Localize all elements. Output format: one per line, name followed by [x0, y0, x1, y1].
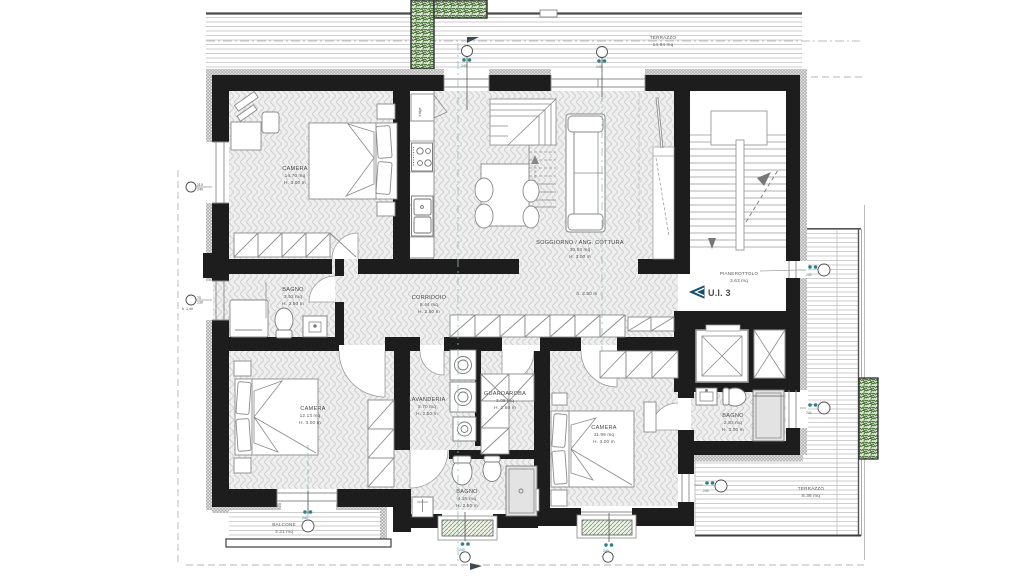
svg-text:BALCONE: BALCONE — [272, 522, 295, 527]
svg-text:BAGNO: BAGNO — [282, 287, 304, 293]
svg-text:H. 2.50 m: H. 2.50 m — [456, 503, 478, 508]
svg-text:240: 240 — [806, 411, 812, 415]
svg-text:PIANEROTTOLO: PIANEROTTOLO — [720, 271, 759, 276]
svg-text:3.63 mq: 3.63 mq — [730, 278, 748, 283]
svg-text:h. 2.50 m: h. 2.50 m — [577, 291, 598, 296]
svg-text:110: 110 — [197, 183, 203, 187]
svg-text:4.25 mq: 4.25 mq — [458, 496, 476, 501]
svg-text:H. 3.00 m: H. 3.00 m — [722, 427, 744, 432]
svg-text:240: 240 — [806, 273, 812, 277]
svg-text:TERRAZZO: TERRAZZO — [798, 486, 825, 491]
svg-text:CAMERA: CAMERA — [282, 166, 307, 172]
svg-text:3.21 mq: 3.21 mq — [275, 529, 293, 534]
svg-text:H. 3.00 m: H. 3.00 m — [299, 420, 321, 425]
svg-text:H. 3.00 m: H. 3.00 m — [593, 439, 615, 444]
svg-text:H. 2.50 m: H. 2.50 m — [416, 411, 438, 416]
svg-text:3.08 mq: 3.08 mq — [496, 398, 514, 403]
svg-text:70: 70 — [197, 296, 201, 300]
svg-text:U.I. 3: U.I. 3 — [708, 288, 731, 298]
svg-text:fridge: fridge — [418, 108, 422, 117]
svg-text:TERRAZZO: TERRAZZO — [650, 35, 677, 40]
svg-text:H. 2.50 m: H. 2.50 m — [494, 405, 516, 410]
svg-text:BAGNO: BAGNO — [722, 413, 744, 419]
svg-text:14.70 mq: 14.70 mq — [285, 173, 306, 178]
svg-text:240: 240 — [459, 548, 465, 552]
svg-text:5.44 mq: 5.44 mq — [420, 302, 438, 307]
svg-text:3.52 mq: 3.52 mq — [284, 294, 302, 299]
svg-text:240: 240 — [461, 64, 467, 68]
svg-text:240: 240 — [197, 188, 203, 192]
svg-text:SOGGIORNO / ANG. COTTURA: SOGGIORNO / ANG. COTTURA — [536, 240, 624, 246]
svg-text:H. 3.00 m: H. 3.00 m — [569, 254, 591, 259]
svg-text:30.53 mq: 30.53 mq — [570, 247, 591, 252]
svg-text:LAVANDERIA: LAVANDERIA — [408, 397, 445, 403]
svg-text:14.94 mq: 14.94 mq — [653, 42, 674, 47]
svg-text:240: 240 — [302, 516, 308, 520]
svg-text:8.36 mq: 8.36 mq — [802, 493, 820, 498]
svg-text:240: 240 — [596, 65, 602, 69]
svg-text:H. 2.50 m: H. 2.50 m — [418, 309, 440, 314]
svg-text:CAMERA: CAMERA — [591, 425, 616, 431]
svg-text:3.70 mq: 3.70 mq — [418, 404, 436, 409]
svg-text:H. 2.50 m: H. 2.50 m — [282, 301, 304, 306]
svg-text:b. 1.40: b. 1.40 — [182, 307, 193, 311]
svg-text:12.13 mq: 12.13 mq — [300, 413, 321, 418]
svg-text:CAMERA: CAMERA — [300, 406, 325, 412]
svg-text:240: 240 — [703, 489, 709, 493]
svg-text:2.83 mq: 2.83 mq — [724, 420, 742, 425]
svg-text:CORRIDOIO: CORRIDOIO — [412, 295, 447, 301]
svg-text:11.99 mq: 11.99 mq — [594, 432, 615, 437]
svg-text:H. 3.00 m: H. 3.00 m — [284, 180, 306, 185]
svg-text:130: 130 — [197, 301, 203, 305]
svg-text:GUARDAROBA: GUARDAROBA — [484, 391, 526, 397]
svg-text:BAGNO: BAGNO — [456, 489, 478, 495]
